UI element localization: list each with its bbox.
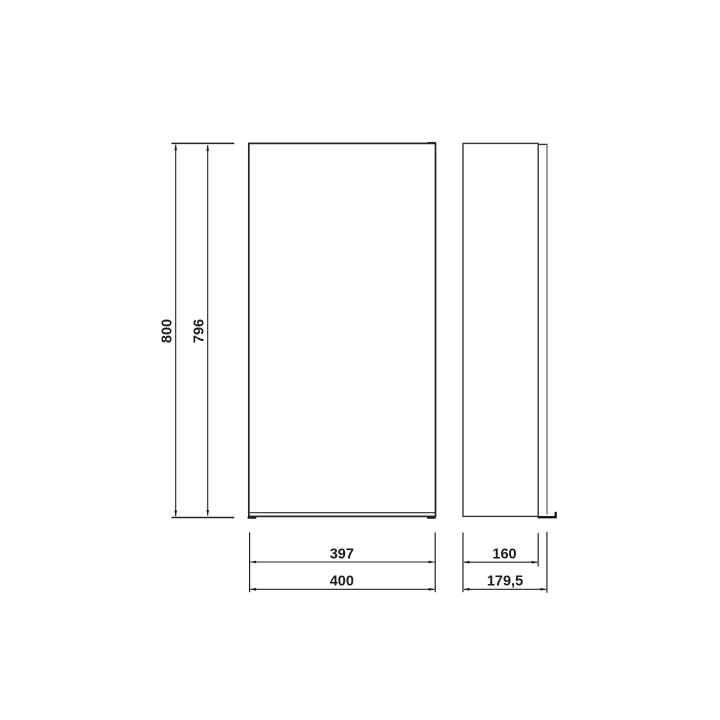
svg-text:400: 400	[330, 574, 354, 590]
svg-text:796: 796	[192, 319, 208, 343]
svg-text:800: 800	[159, 319, 175, 343]
svg-text:397: 397	[330, 546, 354, 562]
svg-text:179,5: 179,5	[487, 574, 523, 590]
svg-text:160: 160	[492, 547, 516, 563]
